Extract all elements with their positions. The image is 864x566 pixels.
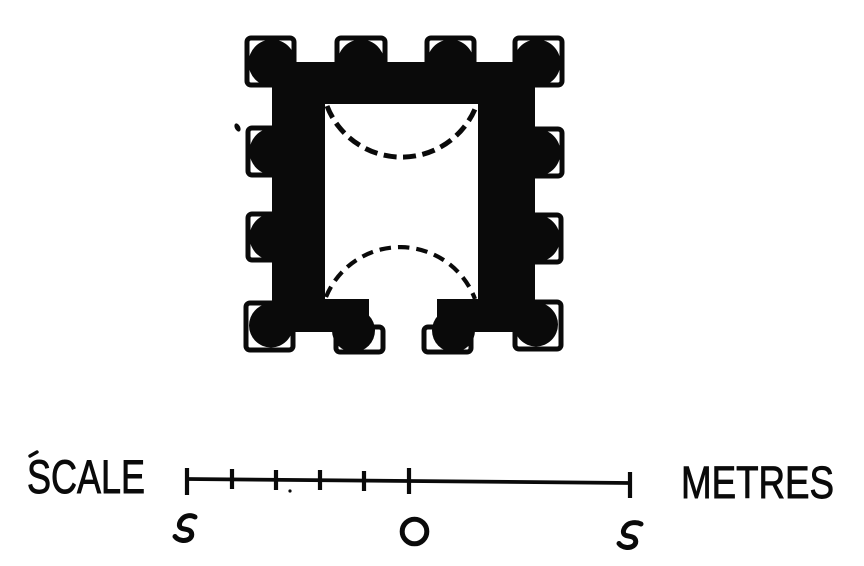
svg-text:SCALE: SCALE — [27, 450, 145, 503]
svg-text:METRES: METRES — [681, 457, 834, 508]
